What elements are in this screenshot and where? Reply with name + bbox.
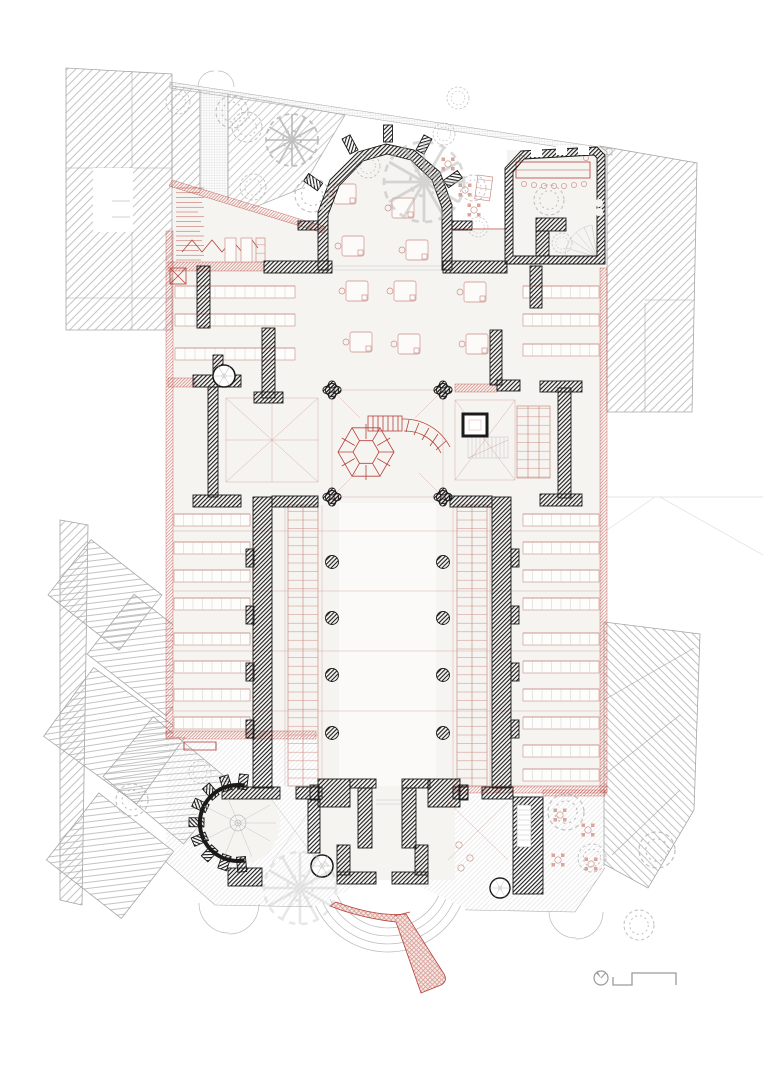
radiator bbox=[256, 238, 265, 262]
nave-floor bbox=[339, 503, 436, 786]
garden-stair bbox=[475, 175, 493, 201]
floor-plan-page bbox=[0, 0, 763, 1080]
floor-plan-drawing bbox=[0, 0, 763, 1080]
spiral-stair-turret bbox=[213, 365, 235, 387]
context-roof-lines-east bbox=[607, 497, 763, 555]
vault-projection-left bbox=[226, 398, 318, 482]
context-window-block bbox=[112, 186, 130, 232]
lift-shaft bbox=[463, 414, 487, 436]
context-block-northeast bbox=[600, 146, 697, 412]
cabinet bbox=[225, 238, 236, 262]
context-block-southeast bbox=[604, 622, 700, 888]
north-arrow-icon bbox=[594, 971, 608, 985]
scale-bar-icon bbox=[613, 973, 676, 985]
cabinet bbox=[241, 238, 252, 262]
sheet-symbols bbox=[594, 971, 676, 985]
spiral-stair-turret bbox=[311, 855, 333, 877]
spiral-stair-turret bbox=[490, 878, 510, 898]
shelf-grid-right bbox=[517, 406, 550, 478]
